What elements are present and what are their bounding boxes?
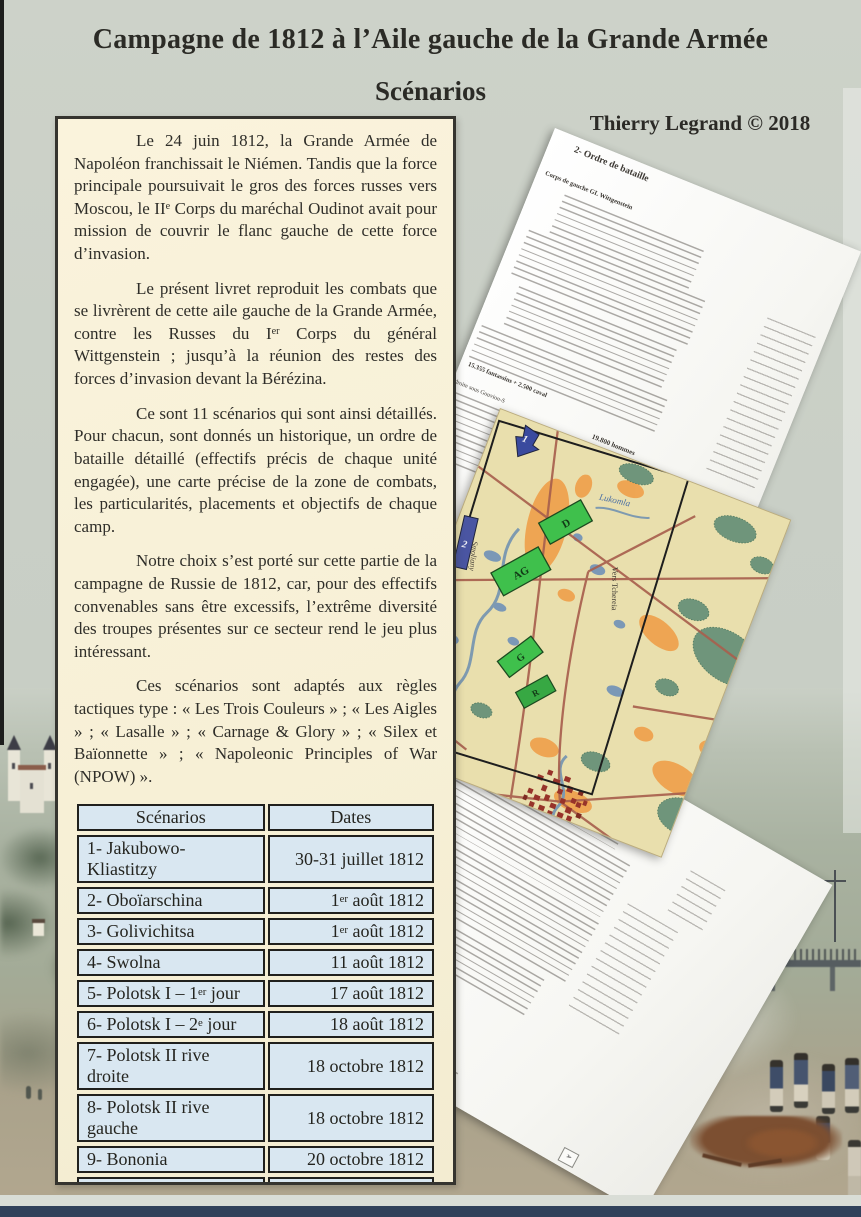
number-lines [704, 317, 816, 494]
table-row: 4- Swolna11 août 1812 [77, 949, 434, 976]
table-row: 10- Czarnicki31 octobre 1812 [77, 1177, 434, 1185]
scan-edge [0, 0, 4, 745]
oob-top-title: 2- Ordre de bataille [572, 145, 650, 184]
scenario-cell: 10- Czarnicki [77, 1177, 265, 1185]
table-row: 3- Golivichitsa1er août 1812 [77, 918, 434, 945]
page-subtitle: Scénarios [0, 76, 861, 107]
table-row: 9- Bononia20 octobre 1812 [77, 1146, 434, 1173]
table-row: 7- Polotsk II rive droite18 octobre 1812 [77, 1042, 434, 1090]
date-cell: 11 août 1812 [268, 949, 434, 976]
church-illustration [8, 743, 62, 848]
house-illustration [33, 923, 44, 936]
author-credit: Thierry Legrand © 2018 [535, 111, 861, 136]
table-row: 5- Polotsk I – 1er jour17 août 1812 [77, 980, 434, 1007]
page-title: Campagne de 1812 à l’Aile gauche de la G… [0, 24, 861, 56]
soldier-figure [845, 1058, 859, 1113]
bottom-light-strip [0, 1195, 861, 1206]
scenario-cell: 3- Golivichitsa [77, 918, 265, 945]
scenario-cell: 9- Bononia [77, 1146, 265, 1173]
scenario-cell: 8- Polotsk II rive gauche [77, 1094, 265, 1142]
table-header-row: Scénarios Dates [77, 804, 434, 831]
mast-illustration [834, 870, 836, 942]
soldier-figure [770, 1060, 783, 1112]
intro-paragraph: Le 24 juin 1812, la Grande Armée de Napo… [74, 130, 437, 266]
number-lines [665, 870, 726, 935]
intro-paragraph: Le présent livret reproduit les combats … [74, 278, 437, 391]
scanned-booklet-page: 2- Ordre de bataille Corps de gauche GL … [0, 0, 861, 1217]
scenario-cell: 5- Polotsk I – 1er jour [77, 980, 265, 1007]
scan-light-strip [843, 88, 861, 833]
date-cell: 20 octobre 1812 [268, 1146, 434, 1173]
scenario-cell: 4- Swolna [77, 949, 265, 976]
soldier-figure [794, 1053, 808, 1108]
intro-paragraph: Ce sont 11 scénarios qui sont ainsi déta… [74, 403, 437, 539]
intro-paragraph: Ces scénarios sont adaptés aux règles ta… [74, 675, 437, 788]
fallen-horse-figure [745, 1128, 820, 1158]
table-row: 6- Polotsk I – 2e jour18 août 1812 [77, 1011, 434, 1038]
scenario-table: Scénarios Dates 1- Jakubowo-Kliastitzy30… [74, 800, 437, 1185]
date-cell: 30-31 juillet 1812 [268, 835, 434, 883]
map-label-road: Vers Tchereia [610, 567, 620, 611]
intro-paragraph: Notre choix s’est porté sur cette partie… [74, 550, 437, 663]
soldier-figure [848, 1140, 861, 1200]
table-row: 8- Polotsk II rive gauche18 octobre 1812 [77, 1094, 434, 1142]
distant-figure [38, 1089, 42, 1100]
date-cell: 1er août 1812 [268, 887, 434, 914]
scenario-cell: 7- Polotsk II rive droite [77, 1042, 265, 1090]
distant-figure [26, 1086, 31, 1099]
scenario-cell: 2- Oboïarschina [77, 887, 265, 914]
date-cell: 18 août 1812 [268, 1011, 434, 1038]
intro-panel: Le 24 juin 1812, la Grande Armée de Napo… [55, 116, 456, 1185]
header-dates: Dates [268, 804, 434, 831]
date-cell: 18 octobre 1812 [268, 1094, 434, 1142]
date-cell: 17 août 1812 [268, 980, 434, 1007]
soldier-figure [822, 1064, 835, 1114]
table-row: 1- Jakubowo-Kliastitzy30-31 juillet 1812 [77, 835, 434, 883]
header-scenarios: Scénarios [77, 804, 265, 831]
date-cell: 1er août 1812 [268, 918, 434, 945]
scenario-cell: 1- Jakubowo-Kliastitzy [77, 835, 265, 883]
date-cell: 31 octobre 1812 [268, 1177, 434, 1185]
table-row: 2- Oboïarschina1er août 1812 [77, 887, 434, 914]
scenario-cell: 6- Polotsk I – 2e jour [77, 1011, 265, 1038]
date-cell: 18 octobre 1812 [268, 1042, 434, 1090]
bottom-navy-strip [0, 1206, 861, 1217]
